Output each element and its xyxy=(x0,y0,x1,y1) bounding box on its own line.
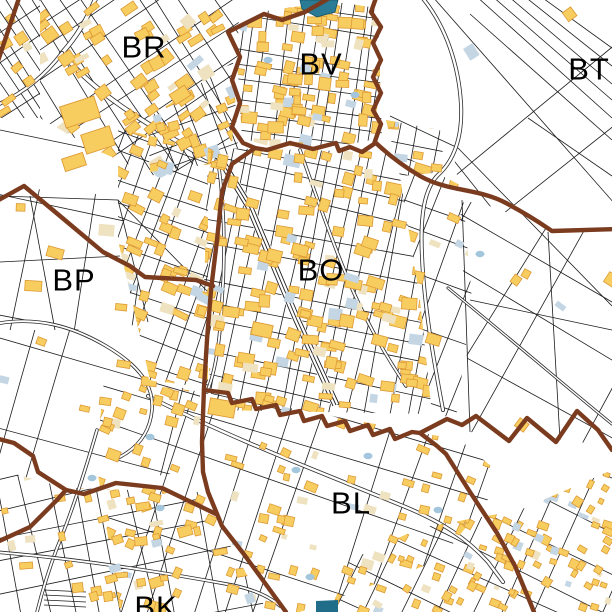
map-frame: BR BV BT BP BO BL BK xyxy=(0,0,612,612)
map-svg[interactable] xyxy=(0,0,612,612)
